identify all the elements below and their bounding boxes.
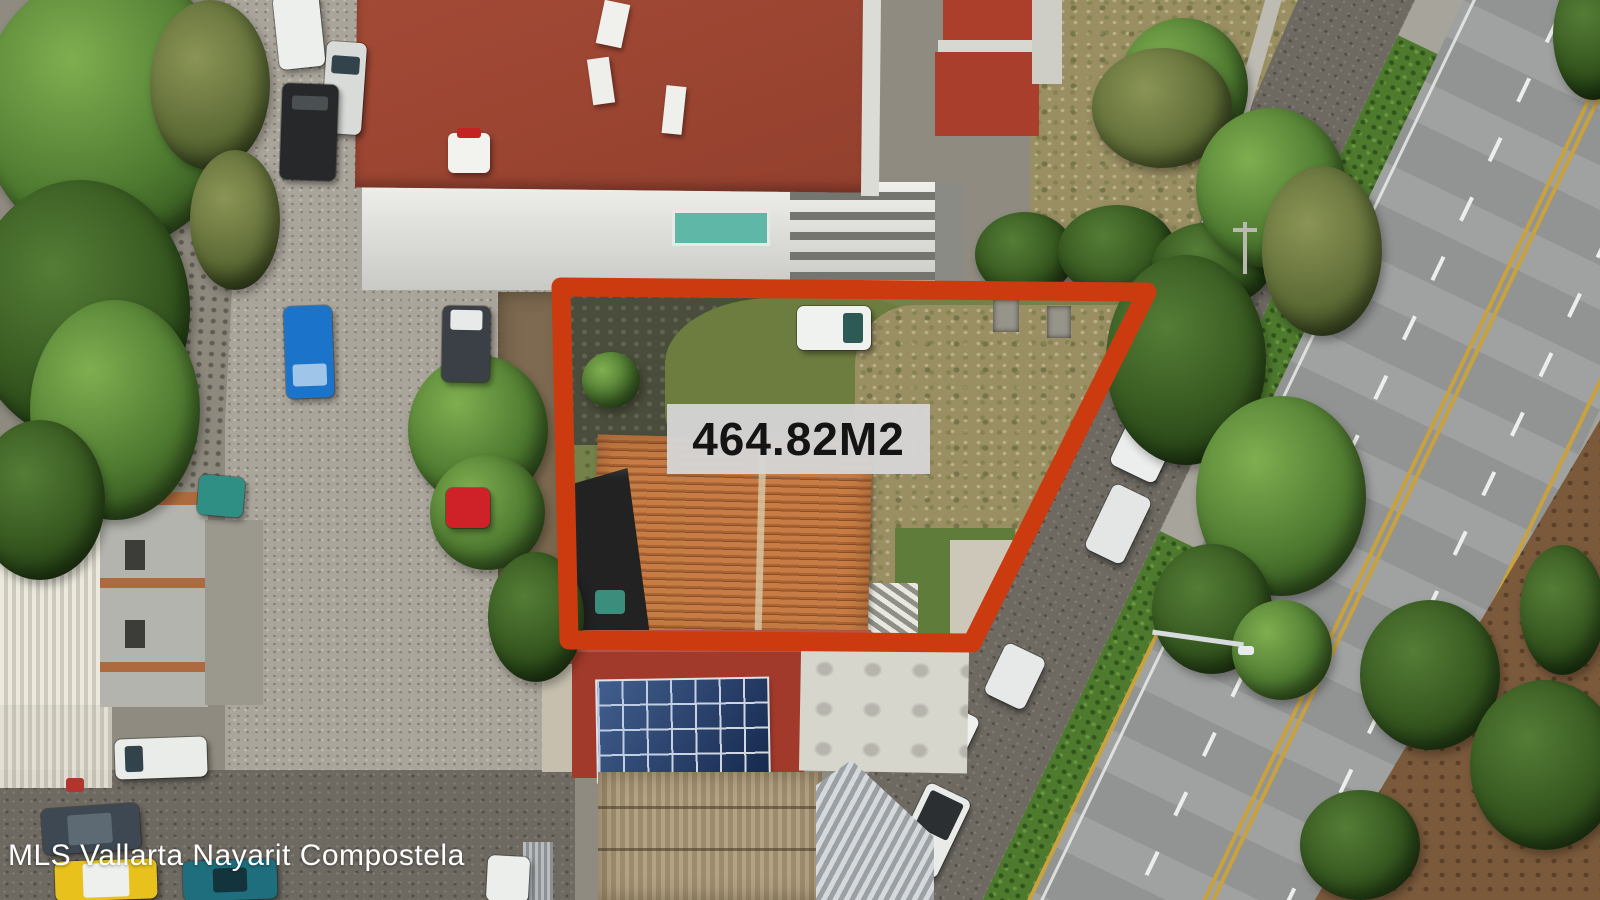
roof-concrete-corner	[1032, 0, 1062, 84]
tan-roof-beam	[598, 848, 822, 851]
red-objects	[66, 778, 84, 792]
parked-car-white-small	[486, 855, 530, 900]
parked-sedan-white	[1084, 482, 1153, 565]
teal-equipment	[595, 590, 625, 614]
left-house	[100, 492, 208, 707]
left-house-window	[125, 620, 145, 648]
tree-canopy	[1300, 790, 1420, 900]
corrugated-tan-roof	[598, 772, 822, 900]
parked-van-white	[983, 642, 1047, 712]
facade-edge-shadow	[935, 182, 963, 290]
balcony-slot	[790, 232, 945, 240]
water-tank-cap	[457, 128, 481, 138]
watermark: MLS Vallarta Nayarit Compostela	[8, 839, 465, 873]
balcony-slot	[790, 272, 945, 280]
parked-car-white	[272, 0, 325, 70]
parked-suv-black	[279, 83, 338, 181]
utility-pole-crossarm	[1233, 228, 1257, 232]
tree-canopy	[1520, 545, 1600, 675]
lot-bush	[582, 352, 640, 408]
parked-car-red-small	[446, 488, 490, 528]
red-roof-right-upper	[943, 0, 1039, 42]
stone-block	[1047, 306, 1071, 338]
solar-panel-array	[597, 679, 769, 782]
water-tank	[448, 133, 490, 173]
tree-canopy	[150, 0, 270, 170]
corrugated-roof-left-lower	[0, 700, 112, 788]
parked-car-white	[114, 736, 207, 779]
streetlight-head	[1238, 646, 1254, 655]
white-rooftop	[799, 649, 969, 774]
area-label: 464.82M2	[667, 404, 930, 474]
left-house-brick-trim	[100, 578, 208, 588]
tree-canopy	[1262, 166, 1382, 336]
balcony-slot	[790, 252, 945, 260]
parked-car-teal-small	[196, 474, 245, 518]
facade-window-teal	[672, 210, 770, 246]
left-patio	[205, 520, 263, 705]
tan-roof-beam	[598, 806, 822, 809]
parked-car-blue	[283, 305, 334, 399]
area-label-text: 464.82M2	[692, 412, 905, 466]
tree-canopy	[190, 150, 280, 290]
roof-trim-white	[861, 0, 881, 196]
parked-hatchback-white	[797, 306, 871, 350]
left-house-brick-trim	[100, 662, 208, 672]
red-roof-right-lower	[935, 52, 1039, 136]
left-house-window	[125, 540, 145, 570]
aerial-photo: 464.82M2 MLS Vallarta Nayarit Compostela	[0, 0, 1600, 900]
street-tree	[488, 552, 584, 682]
parked-pickup-dark	[441, 306, 490, 383]
stone-block	[993, 300, 1019, 332]
balcony-slot	[790, 212, 945, 220]
